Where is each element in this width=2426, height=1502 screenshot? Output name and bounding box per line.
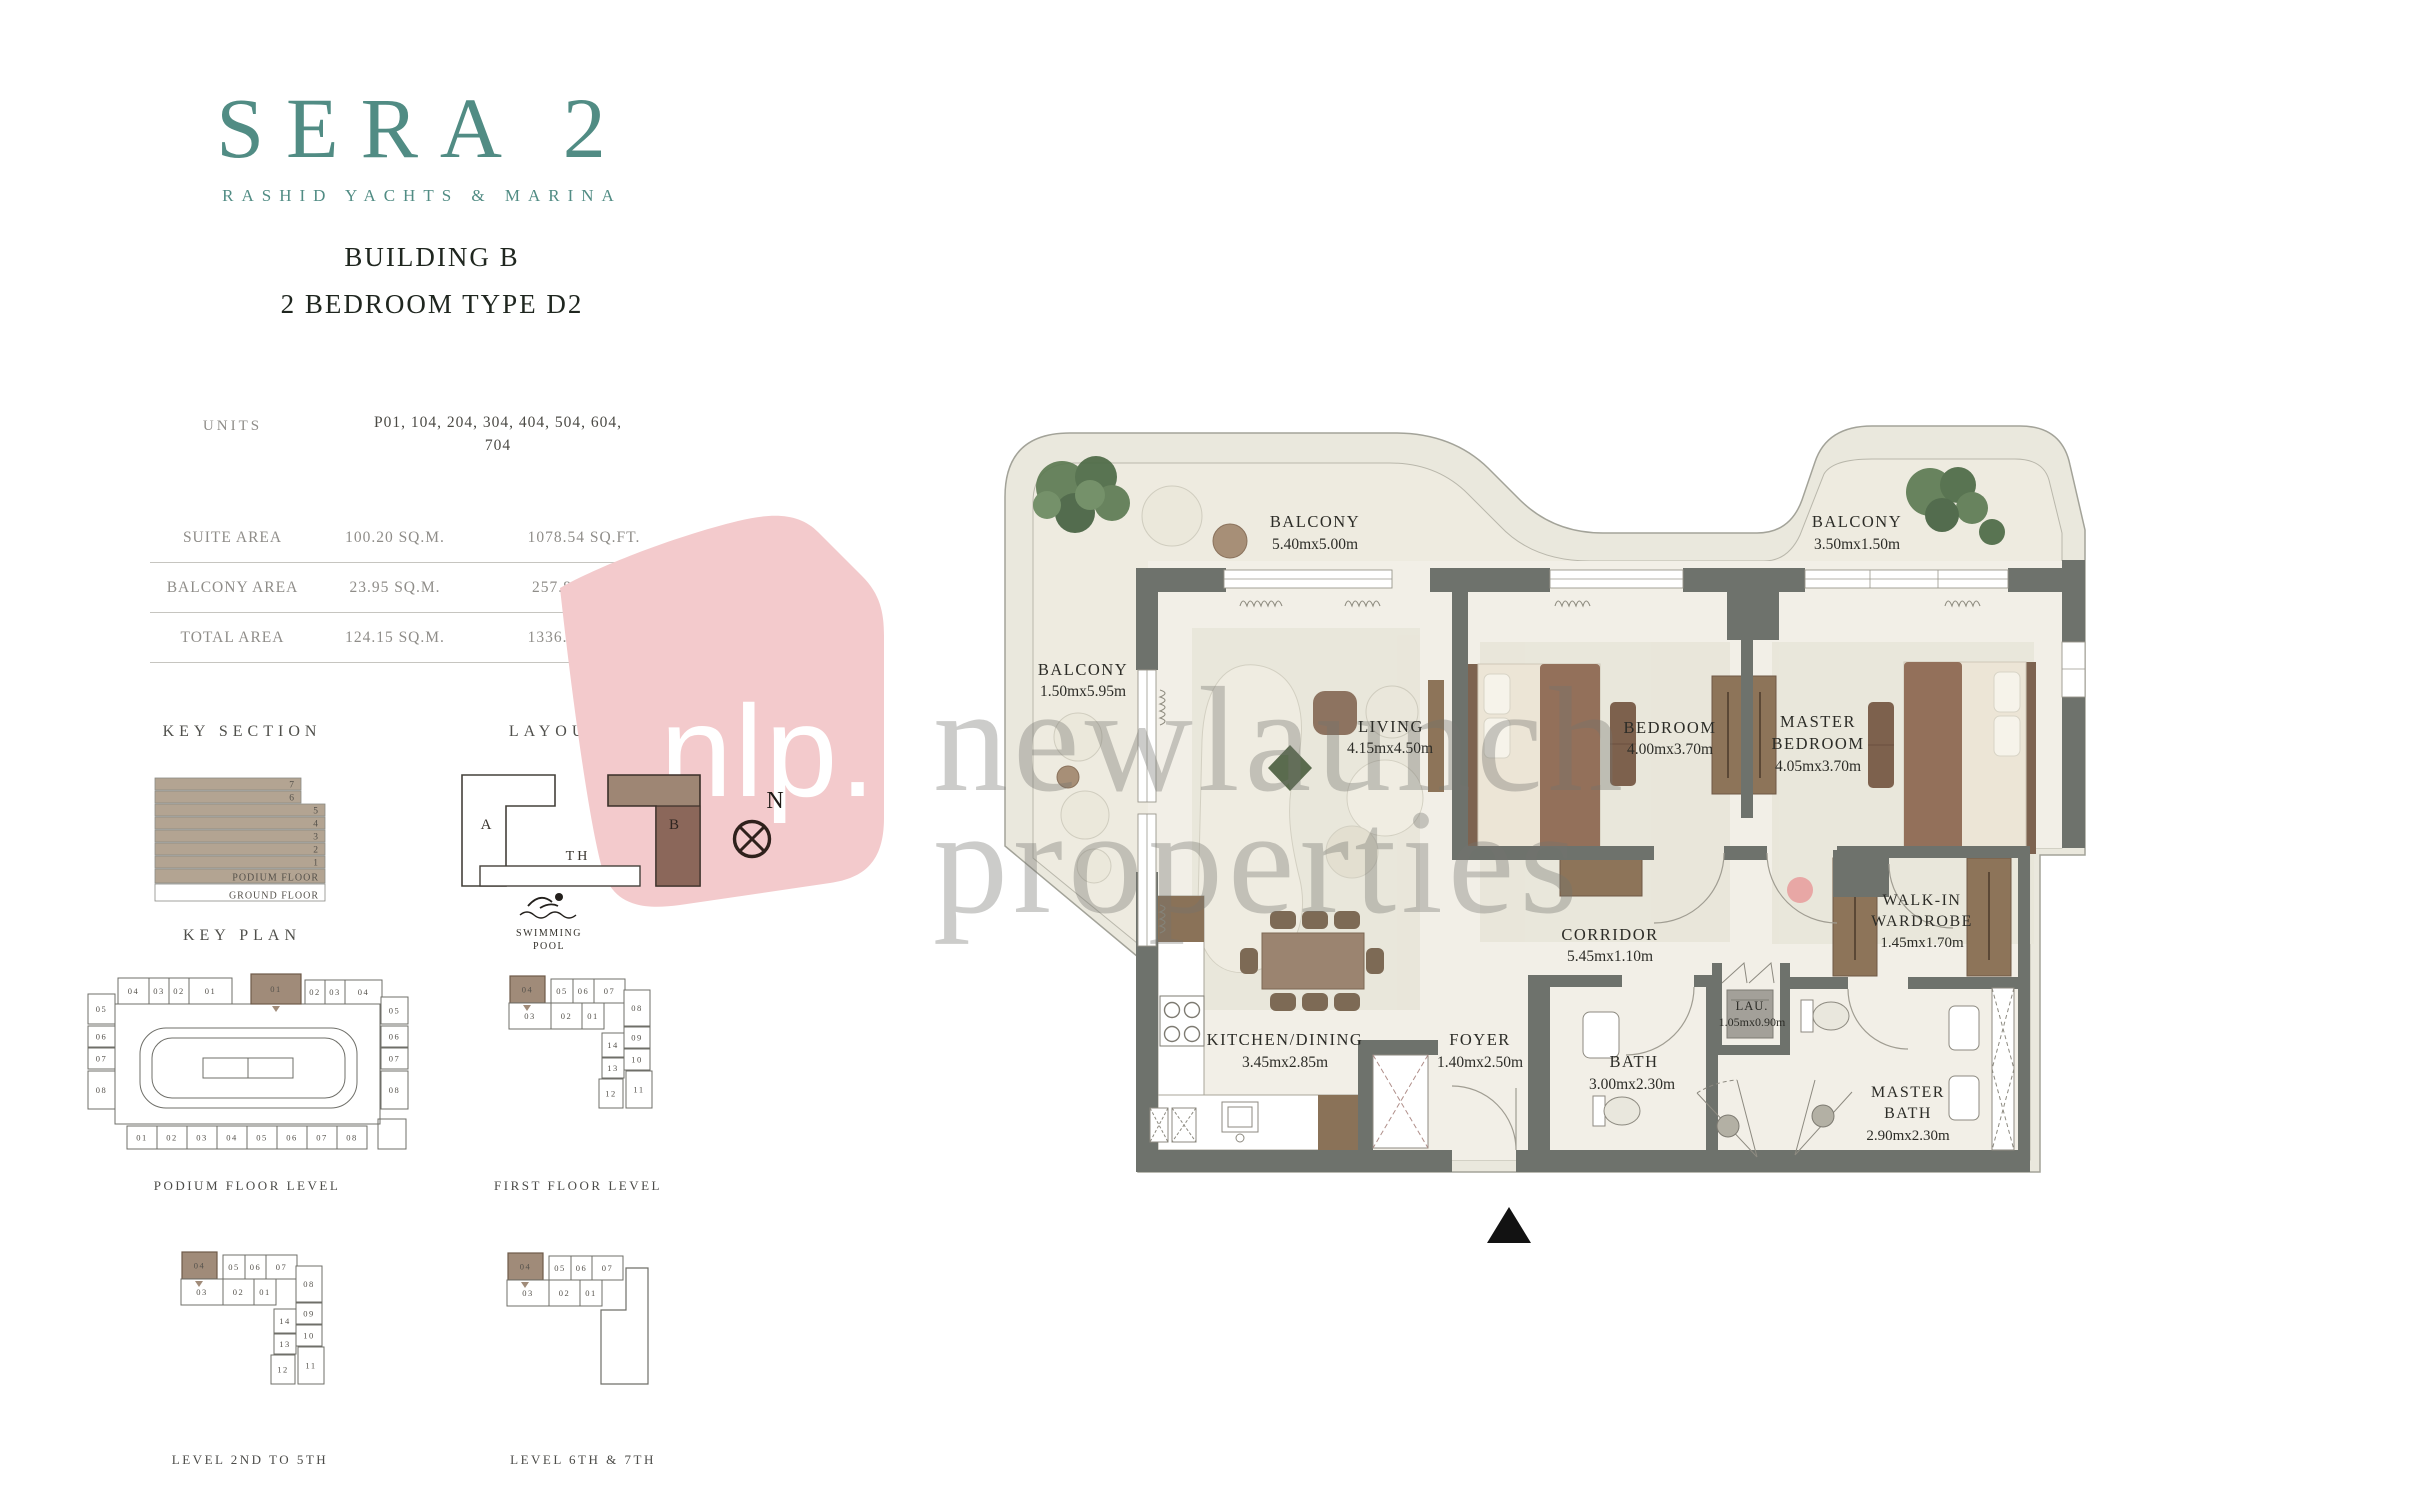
key-section-floor-label: 1 xyxy=(313,859,319,869)
key-section-floor-bar xyxy=(155,817,325,829)
key-plan-unit-label: 08 xyxy=(346,1133,358,1143)
key-plan-unit-label: 09 xyxy=(303,1309,315,1319)
wall-segment xyxy=(1516,1150,2030,1172)
key-plan-unit-label: 04 xyxy=(522,985,534,995)
svg-text:BEDROOM: BEDROOM xyxy=(1623,718,1716,737)
key-plan-unit-label: 02 xyxy=(309,987,321,997)
key-section-floor-label: 2 xyxy=(313,846,319,856)
key-plan-unit-label: 04 xyxy=(128,986,140,996)
building-title: BUILDING B xyxy=(132,234,732,281)
site-watermark-text: newlaunch properties xyxy=(933,657,1628,945)
key-plan-unit-label: 06 xyxy=(250,1262,262,1272)
key-plan-unit-label: 13 xyxy=(279,1339,291,1349)
key-plan-unit-label: 03 xyxy=(522,1288,534,1298)
key-section-floor-label: GROUND FLOOR xyxy=(229,891,319,902)
level67-tower-outline xyxy=(601,1268,648,1384)
key-plan-unit-label: 04 xyxy=(194,1261,206,1271)
key-plan-unit-label: 08 xyxy=(631,1003,643,1013)
key-plan-unit-label: 07 xyxy=(276,1262,288,1272)
key-plan-unit-label: 03 xyxy=(524,1011,536,1021)
key-plan-unit-label: 01 xyxy=(205,986,217,996)
svg-text:3.00mx2.30m: 3.00mx2.30m xyxy=(1589,1076,1675,1093)
th-label: TH xyxy=(566,849,591,864)
bath-toilet xyxy=(1604,1097,1640,1125)
key-section-floor-bar xyxy=(155,791,301,803)
svg-text:BATH: BATH xyxy=(1884,1105,1932,1122)
svg-text:4.15mx4.50m: 4.15mx4.50m xyxy=(1347,740,1433,757)
key-plan-unit-label: 05 xyxy=(96,1004,108,1014)
key-section-floor-label: 4 xyxy=(313,820,319,830)
key-plan-unit-label: 06 xyxy=(578,986,590,996)
master-toilet xyxy=(1813,1002,1849,1030)
svg-text:MASTER: MASTER xyxy=(1871,1084,1945,1101)
key-plan-unit-label: 07 xyxy=(604,986,616,996)
key-plan-unit-label: 14 xyxy=(607,1040,619,1050)
wall-segment xyxy=(1430,568,1550,592)
area-sqm: 100.20 SQ.M. xyxy=(315,529,475,547)
key-plan-unit-label: 01 xyxy=(270,984,282,994)
key-plan-unit-label: 06 xyxy=(389,1032,401,1042)
key-plan-unit-label: 02 xyxy=(559,1288,571,1298)
first-floor-caption: FIRST FLOOR LEVEL xyxy=(494,1178,662,1193)
watermark-red-dot xyxy=(1787,877,1813,903)
key-plan-unit-label: 02 xyxy=(561,1011,573,1021)
key-section-floor-bar xyxy=(155,856,325,868)
wall-segment xyxy=(1753,846,1767,860)
key-plan-unit-label: 07 xyxy=(602,1263,614,1273)
brand-logo: SERA 2 xyxy=(132,78,712,178)
wall-segment xyxy=(1780,963,1790,1053)
area-label: TOTAL AREA xyxy=(150,629,315,647)
key-plan-unit-label: 05 xyxy=(389,1006,401,1016)
svg-text:BALCONY: BALCONY xyxy=(1812,512,1902,531)
svg-text:3.50mx1.50m: 3.50mx1.50m xyxy=(1814,536,1900,553)
svg-text:FOYER: FOYER xyxy=(1449,1030,1511,1049)
key-plan-unit-label: 11 xyxy=(305,1361,316,1371)
key-section-floor-label: 6 xyxy=(289,794,295,804)
wall-segment xyxy=(1683,568,1805,592)
svg-text:4.00mx3.70m: 4.00mx3.70m xyxy=(1627,741,1713,758)
floorplan-document: { "brand": { "logo": "SERA 2", "tagline"… xyxy=(0,0,2426,1502)
units-value: P01, 104, 204, 304, 404, 504, 604, 704 xyxy=(318,411,678,457)
building-b-label: B xyxy=(669,817,679,833)
key-plan-unit-label: 05 xyxy=(554,1263,566,1273)
swimming-pool-label-2: POOL xyxy=(533,941,565,952)
key-plan-unit-label: 02 xyxy=(173,986,185,996)
th-strip xyxy=(480,866,640,886)
wall-segment xyxy=(2062,560,2085,642)
key-plan-unit-label: 11 xyxy=(633,1085,644,1095)
svg-text:WALK-IN: WALK-IN xyxy=(1883,892,1962,909)
svg-text:WARDROBE: WARDROBE xyxy=(1871,913,1973,930)
key-section-floor-label: 3 xyxy=(313,833,319,843)
wall-segment xyxy=(1528,975,1550,1160)
key-section-floor-bar xyxy=(155,778,301,790)
svg-text:MASTER: MASTER xyxy=(1780,712,1856,731)
brand-tagline: RASHID YACHTS & MARINA xyxy=(132,186,712,206)
area-sqm: 124.15 SQ.M. xyxy=(315,629,475,647)
key-section-header: KEY SECTION xyxy=(92,723,392,741)
washer xyxy=(1727,990,1773,1038)
svg-text:properties: properties xyxy=(933,779,1583,945)
level2to5-caption: LEVEL 2ND TO 5TH xyxy=(172,1452,328,1467)
svg-text:2.90mx2.30m: 2.90mx2.30m xyxy=(1866,1128,1950,1144)
wall-segment xyxy=(1908,977,2018,989)
wall-segment xyxy=(1550,975,1622,987)
svg-text:CORRIDOR: CORRIDOR xyxy=(1561,925,1658,944)
key-section-diagram: 7654321PODIUM FLOORGROUND FLOOR xyxy=(80,765,360,915)
key-plan-unit-label: 06 xyxy=(96,1032,108,1042)
svg-text:1.45mx1.70m: 1.45mx1.70m xyxy=(1880,935,1964,951)
svg-text:BALCONY: BALCONY xyxy=(1038,660,1128,679)
key-plan-unit-label: 06 xyxy=(286,1133,298,1143)
units-label: UNITS xyxy=(150,418,315,435)
key-plan-unit-label: 02 xyxy=(233,1287,245,1297)
svg-text:3.45mx2.85m: 3.45mx2.85m xyxy=(1242,1054,1328,1071)
key-plan-unit-label: 03 xyxy=(196,1287,208,1297)
swimmer-icon xyxy=(520,893,576,918)
key-plan-unit-label: 02 xyxy=(166,1133,178,1143)
wall-segment xyxy=(2008,568,2062,592)
key-plan-entry-marker xyxy=(272,1006,280,1012)
svg-text:BALCONY: BALCONY xyxy=(1270,512,1360,531)
units-value-line1: P01, 104, 204, 304, 404, 504, 604, xyxy=(318,411,678,434)
area-label: BALCONY AREA xyxy=(150,579,315,597)
svg-text:KITCHEN/DINING: KITCHEN/DINING xyxy=(1207,1030,1364,1049)
svg-text:LAU.: LAU. xyxy=(1736,999,1769,1013)
wall-segment xyxy=(1136,1150,1452,1172)
wall-segment xyxy=(1727,592,1779,640)
key-plan-unit-label: 04 xyxy=(520,1262,532,1272)
wall-segment xyxy=(1358,1040,1438,1055)
wall-segment xyxy=(1887,846,2030,858)
podium-caption: PODIUM FLOOR LEVEL xyxy=(154,1178,341,1193)
key-section-floor-label: PODIUM FLOOR xyxy=(232,873,319,884)
key-plan-unit-label: 03 xyxy=(153,986,165,996)
key-plan-unit-label: 14 xyxy=(279,1316,291,1326)
key-plan-unit-label: 05 xyxy=(556,986,568,996)
key-plan-unit-label: 05 xyxy=(256,1133,268,1143)
key-section-floor-label: 5 xyxy=(313,807,319,817)
wall-segment xyxy=(1741,640,1753,818)
svg-text:5.40mx5.00m: 5.40mx5.00m xyxy=(1272,536,1358,553)
wall-segment xyxy=(1790,977,1848,989)
key-plan-unit-label: 12 xyxy=(277,1365,289,1375)
svg-text:1.05mx0.90m: 1.05mx0.90m xyxy=(1719,1015,1786,1029)
key-plan-unit-label: 01 xyxy=(136,1133,148,1143)
units-value-line2: 704 xyxy=(318,434,678,457)
key-plan-unit-label: 04 xyxy=(358,987,370,997)
wall-segment xyxy=(2062,697,2085,848)
key-plan-unit-label: 07 xyxy=(316,1133,328,1143)
layout-diagram: A B TH SWIMMING POOL N xyxy=(440,758,920,970)
svg-text:1.40mx2.50m: 1.40mx2.50m xyxy=(1437,1054,1523,1071)
key-plan-unit-label: 05 xyxy=(228,1262,240,1272)
key-plan-unit-label: 10 xyxy=(303,1331,315,1341)
wall-segment xyxy=(1724,846,1753,860)
svg-text:BEDROOM: BEDROOM xyxy=(1771,734,1864,753)
key-plan-unit-label: 13 xyxy=(607,1063,619,1073)
area-label: SUITE AREA xyxy=(150,529,315,547)
building-a-label: A xyxy=(481,817,492,833)
wall-segment xyxy=(1833,850,1889,897)
page-title: BUILDING B 2 BEDROOM TYPE D2 xyxy=(132,234,732,328)
key-plan-unit-label: 04 xyxy=(226,1133,238,1143)
svg-text:BATH: BATH xyxy=(1609,1052,1658,1071)
key-plan-header: KEY PLAN xyxy=(92,927,392,945)
unit-type-title: 2 BEDROOM TYPE D2 xyxy=(132,281,732,328)
key-plan-unit-label: 07 xyxy=(389,1054,401,1064)
key-plan-unit-label: 01 xyxy=(259,1287,271,1297)
level6and7-caption: LEVEL 6TH & 7TH xyxy=(510,1452,656,1467)
key-section-floor-bar xyxy=(155,804,325,816)
key-section-floor-bar xyxy=(155,830,325,842)
key-plan-unit-label: 08 xyxy=(303,1279,315,1289)
floor-plan: newlaunch properties BALCONY 5.40mx5.00m… xyxy=(988,418,2100,1263)
key-plan-unit-label: 09 xyxy=(631,1033,643,1043)
master-sink-1 xyxy=(1949,1006,1979,1050)
svg-text:1.50mx5.95m: 1.50mx5.95m xyxy=(1040,683,1126,700)
key-plan-unit-label: 01 xyxy=(587,1011,599,1021)
key-section-floor-label: 7 xyxy=(289,781,295,791)
wall-segment xyxy=(2018,848,2030,1160)
master-sink-2 xyxy=(1949,1076,1979,1120)
key-plan-unit-label: 03 xyxy=(329,987,341,997)
key-plan-unit-label: 01 xyxy=(585,1288,597,1298)
entrance-arrow xyxy=(1487,1207,1531,1243)
master-shower-head xyxy=(1812,1105,1834,1127)
svg-text:LIVING: LIVING xyxy=(1358,717,1424,736)
key-section-floor-bar xyxy=(155,843,325,855)
key-plan-unit-label: 08 xyxy=(389,1085,401,1095)
key-plan-diagrams: 0403020101020304050607080506070801020304… xyxy=(60,955,720,1480)
key-plan-unit-label: 07 xyxy=(96,1054,108,1064)
svg-text:5.45mx1.10m: 5.45mx1.10m xyxy=(1567,948,1653,965)
north-label: N xyxy=(766,788,783,814)
shower-head xyxy=(1717,1115,1739,1137)
wall-segment xyxy=(1358,1055,1373,1150)
key-plan-unit-label: 10 xyxy=(631,1055,643,1065)
swimming-pool-label-1: SWIMMING xyxy=(516,928,582,939)
wall-segment xyxy=(1136,568,1226,592)
north-compass-icon: N xyxy=(735,788,784,857)
key-plan-unit-label: 03 xyxy=(196,1133,208,1143)
area-sqm: 23.95 SQ.M. xyxy=(315,579,475,597)
key-plan-unit-label: 08 xyxy=(96,1085,108,1095)
svg-text:4.05mx3.70m: 4.05mx3.70m xyxy=(1775,758,1861,775)
wall-segment xyxy=(1712,1045,1790,1055)
wall-segment xyxy=(1712,963,1722,1053)
key-plan-unit-label: 12 xyxy=(605,1089,617,1099)
key-plan-unit-label: 06 xyxy=(576,1263,588,1273)
